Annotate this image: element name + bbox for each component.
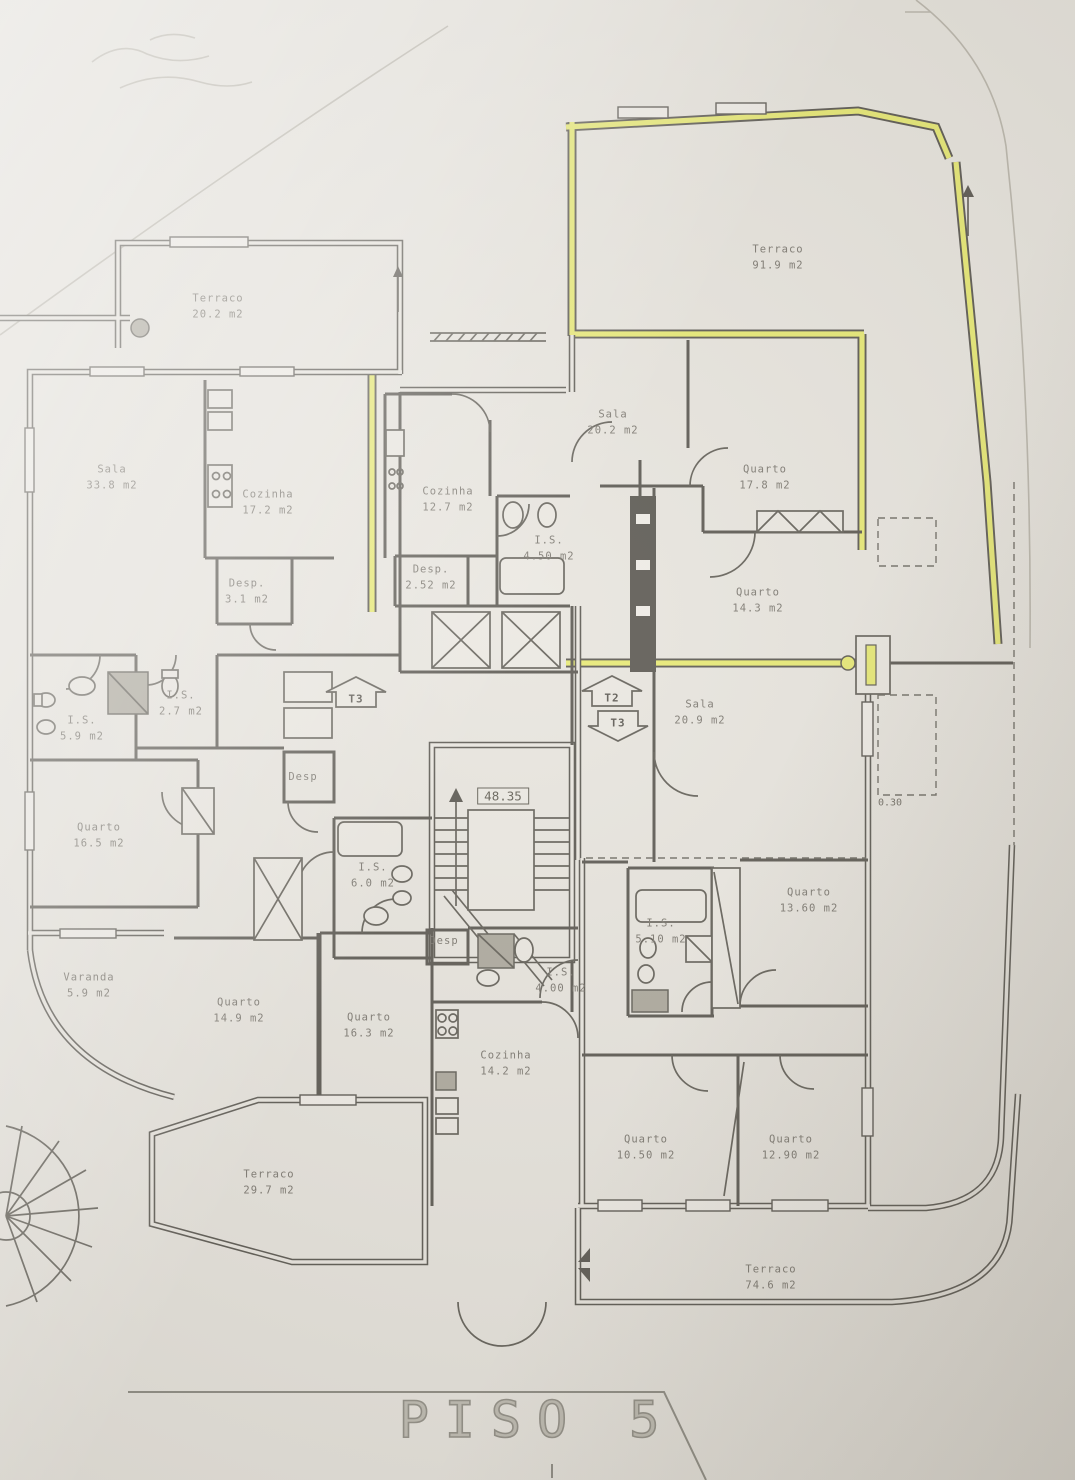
room-label: I.S.2.7 m2: [159, 688, 203, 721]
room-label: Quarto16.5 m2: [73, 820, 124, 853]
elevator-shafts: [432, 612, 560, 668]
room-label: I.S.6.0 m2: [351, 860, 395, 893]
room-label: I.S.5.9 m2: [60, 713, 104, 746]
stair-elevation-label: 48.35: [477, 788, 529, 805]
room-label: Cozinha12.7 m2: [422, 484, 473, 517]
room-label: Desp.3.1 m2: [225, 576, 269, 609]
room-label: Quarto12.90 m2: [762, 1132, 821, 1165]
room-label: I.S.4.00 m2: [535, 965, 586, 998]
unit-marker-shapes: [326, 676, 648, 741]
room-label: Terraco29.7 m2: [243, 1167, 294, 1200]
floor-title: PISO 5: [399, 1391, 676, 1449]
room-label: Desp.2.52 m2: [405, 562, 456, 595]
room-label: Sala33.8 m2: [86, 462, 137, 495]
room-label: Sala20.9 m2: [674, 697, 725, 730]
room-label: Terraco91.9 m2: [752, 242, 803, 275]
room-label: Quarto10.50 m2: [617, 1132, 676, 1165]
room-label: Quarto16.3 m2: [343, 1010, 394, 1043]
room-label: Desp: [429, 933, 458, 949]
room-label: Quarto14.9 m2: [213, 995, 264, 1028]
site-boundary-lines: [0, 0, 1030, 648]
room-label: Terraco74.6 m2: [745, 1262, 796, 1295]
room-label: Quarto13.60 m2: [780, 885, 839, 918]
room-label: I.S.5.10 m2: [635, 916, 686, 949]
entry-step-arc: [458, 1302, 546, 1346]
dimension-note: 0.30: [878, 798, 902, 809]
railing-hatch: [430, 333, 546, 341]
unit-marker-t3-left: T3: [348, 693, 363, 706]
floor-plan-sheet: Terraco20.2 m2 Terraco91.9 m2 Sala33.8 m…: [0, 0, 1075, 1480]
spiral-stair: [0, 1126, 98, 1306]
room-label: Sala20.2 m2: [587, 407, 638, 440]
room-label: Terraco20.2 m2: [192, 291, 243, 324]
unit-marker-t3-right: T3: [610, 717, 625, 730]
room-label: Varanda5.9 m2: [63, 970, 114, 1003]
room-label: Quarto14.3 m2: [732, 585, 783, 618]
room-label: Desp: [288, 769, 317, 785]
room-label: Cozinha17.2 m2: [242, 487, 293, 520]
room-label: I.S.4.50 m2: [523, 533, 574, 566]
room-label: Cozinha14.2 m2: [480, 1048, 531, 1081]
unit-marker-t2-right: T2: [604, 692, 619, 705]
room-label: Quarto17.8 m2: [739, 462, 790, 495]
floor-plan-drawing: [0, 0, 1075, 1480]
